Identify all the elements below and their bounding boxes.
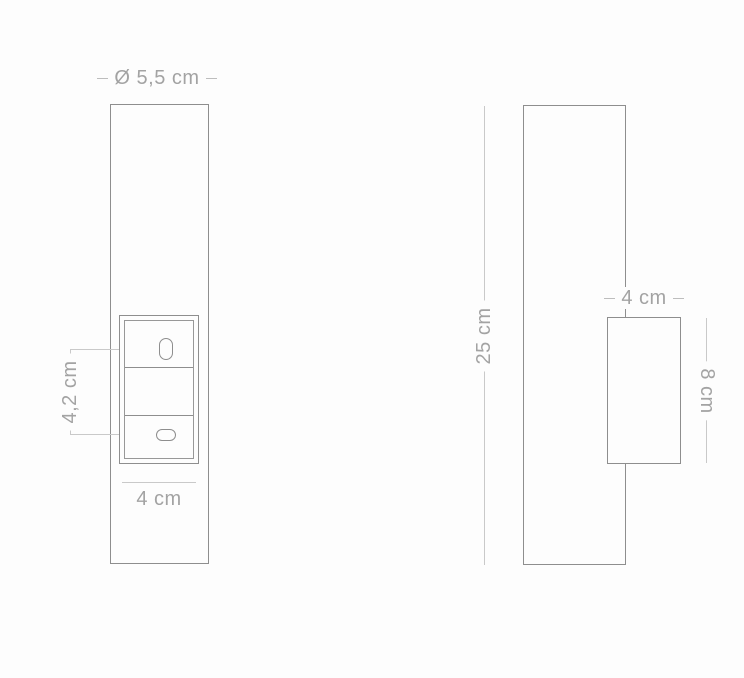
switch-plate-inner-outline [124,320,194,459]
dimension-diagram: Ø 5,5 cm 4,2 cm 4 cm 25 cm [0,0,744,678]
switch-plate-divider-top [125,367,193,368]
switch-width-dimension-label: 4 cm [120,488,198,510]
dimension-dash-right [673,298,684,299]
switch-plate-outline [119,315,199,464]
switch-plate-divider-bottom [125,415,193,416]
dimension-dash-right [206,78,217,79]
switch-slot-vertical [159,338,173,360]
diameter-label-text: Ø 5,5 cm [111,67,202,89]
diameter-dimension-label: Ø 5,5 cm [96,66,218,90]
switch-box-side-outline [607,317,681,464]
switch-box-depth-label: 4 cm [602,287,686,309]
switch-slot-horizontal [156,429,176,441]
dimension-dash-left [604,298,615,299]
switch-height-dimension-label: 4,2 cm [59,353,81,430]
dimension-dash-left [97,78,108,79]
switch-box-height-dimension-label: 8 cm [696,361,718,420]
switch-width-dimension-line [122,482,196,483]
switch-box-depth-text: 4 cm [618,287,669,309]
body-height-dimension-label: 25 cm [473,301,495,372]
